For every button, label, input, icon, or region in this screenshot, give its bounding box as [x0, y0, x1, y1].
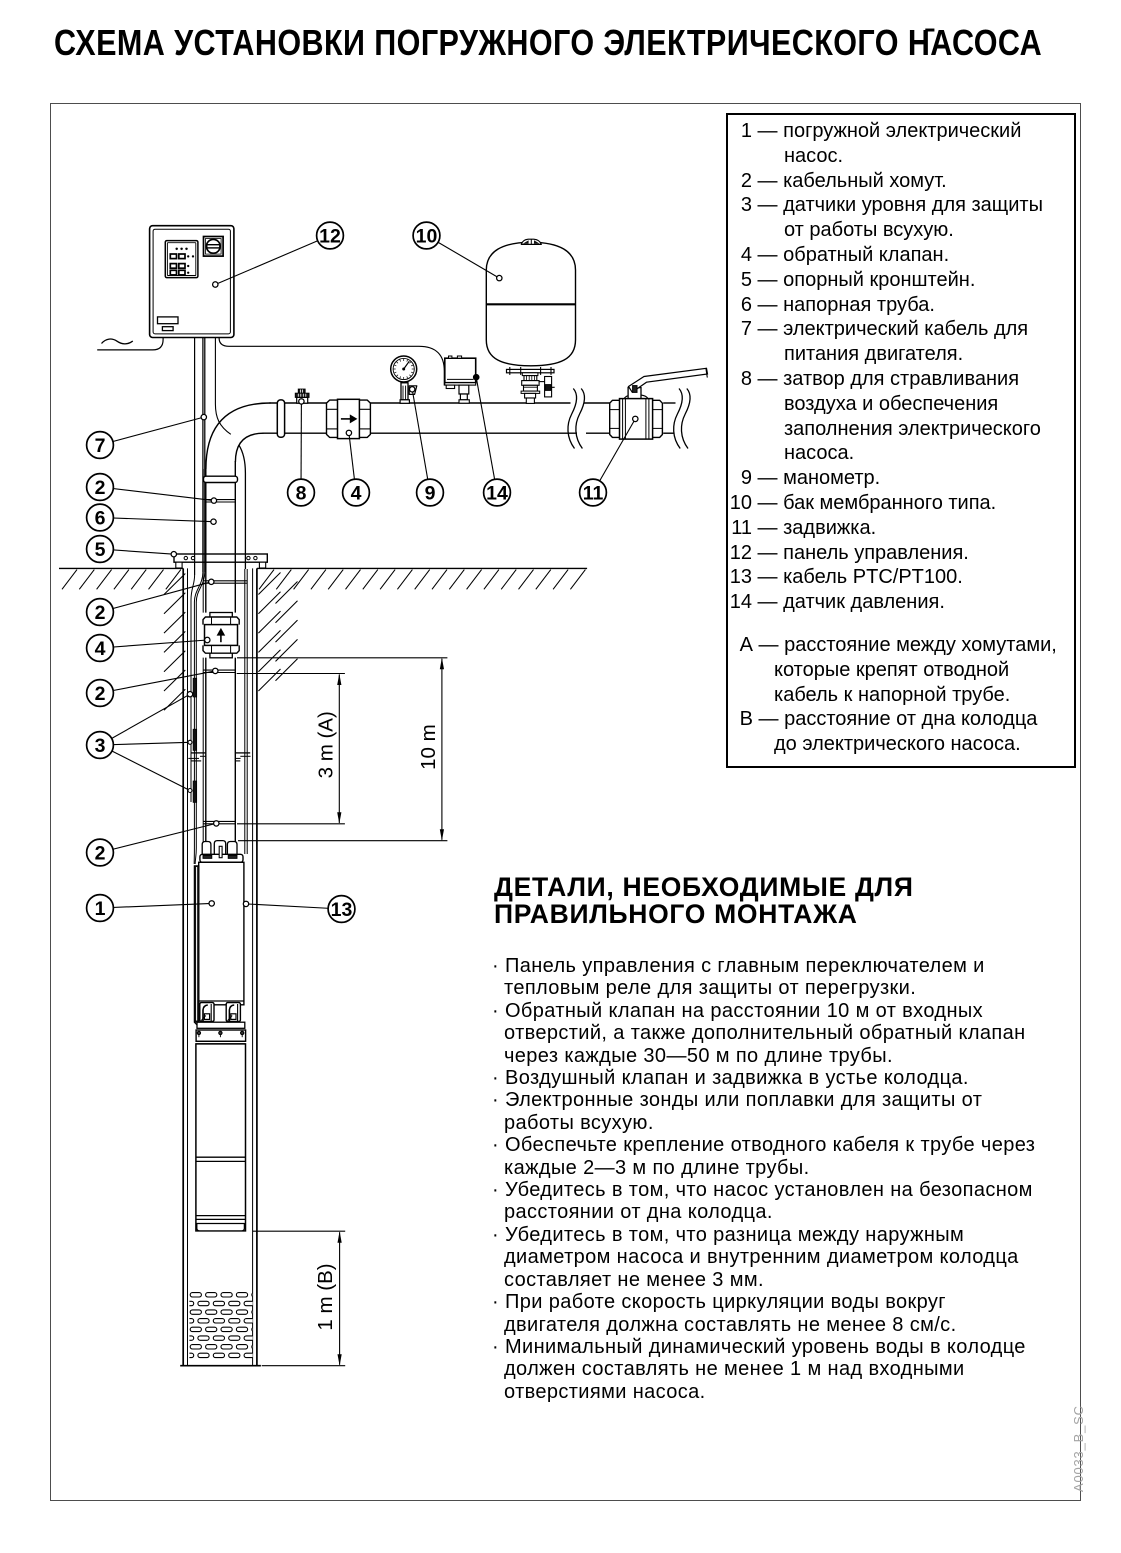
svg-text:2: 2 [95, 842, 106, 864]
svg-text:12: 12 [319, 225, 341, 247]
svg-text:2: 2 [95, 477, 106, 499]
svg-text:4: 4 [351, 482, 362, 504]
svg-text:10 m: 10 m [417, 724, 440, 770]
svg-text:10: 10 [416, 225, 438, 247]
svg-text:3 m (A): 3 m (A) [315, 711, 338, 778]
svg-text:4: 4 [95, 638, 106, 660]
svg-text:2: 2 [95, 602, 106, 624]
svg-text:13: 13 [331, 899, 353, 921]
svg-text:2: 2 [95, 683, 106, 705]
svg-text:9: 9 [425, 482, 436, 504]
svg-text:1: 1 [95, 898, 106, 920]
svg-text:6: 6 [95, 507, 106, 529]
svg-text:1 m (B): 1 m (B) [314, 1263, 337, 1330]
svg-text:11: 11 [583, 482, 604, 504]
svg-text:8: 8 [296, 482, 307, 504]
svg-text:14: 14 [486, 482, 508, 504]
svg-text:7: 7 [95, 435, 106, 457]
svg-text:3: 3 [95, 735, 106, 757]
svg-text:5: 5 [95, 539, 106, 561]
